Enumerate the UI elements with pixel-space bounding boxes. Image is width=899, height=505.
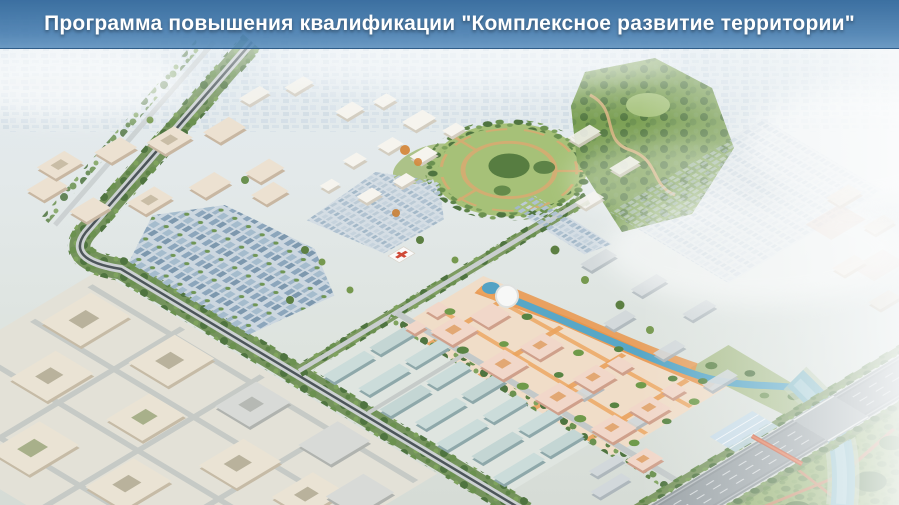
masterplan-aerial-render [0, 0, 899, 505]
plaza [496, 285, 518, 307]
slide: Программа повышения квалификации "Компле… [0, 0, 899, 505]
slide-title: Программа повышения квалификации "Компле… [44, 12, 855, 36]
title-banner: Программа повышения квалификации "Компле… [0, 0, 899, 49]
